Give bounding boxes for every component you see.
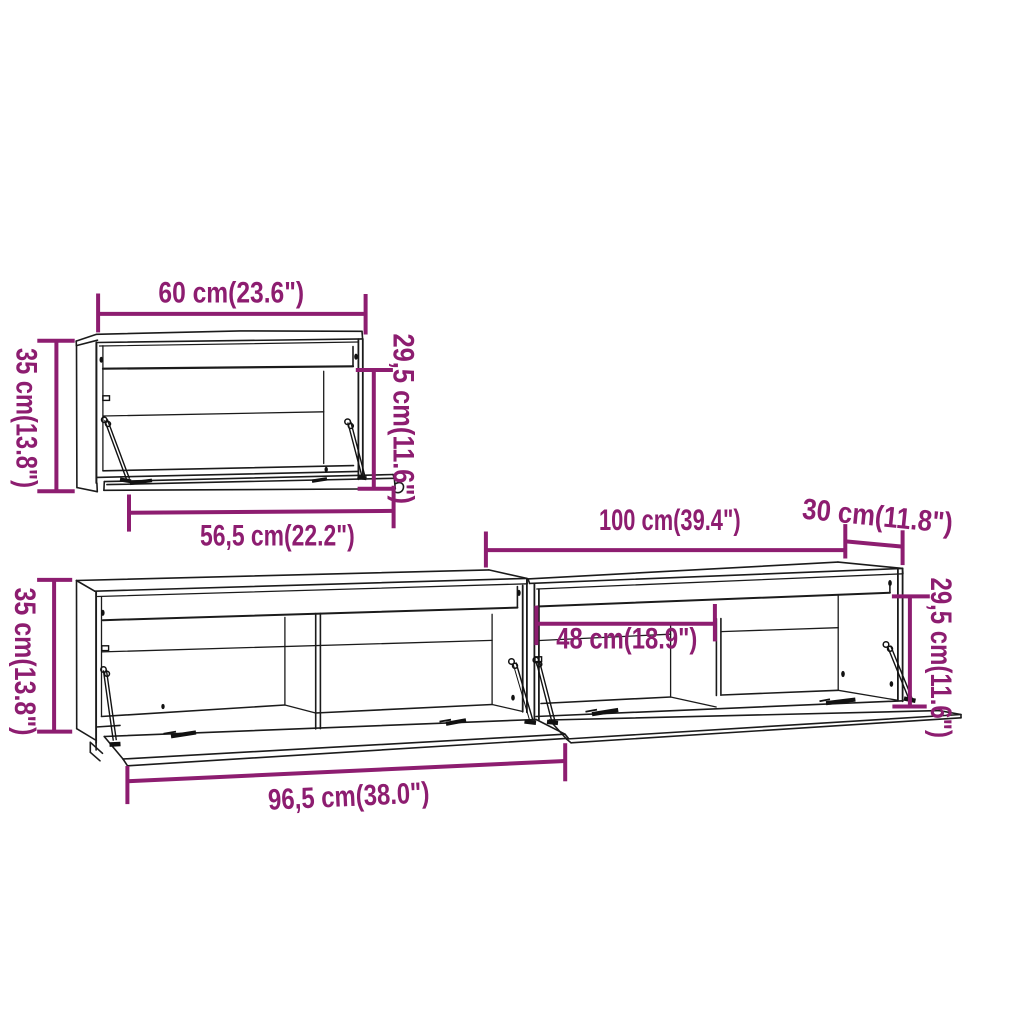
svg-text:29,5 cm(11.6"): 29,5 cm(11.6") [387, 334, 420, 505]
svg-text:100 cm(39.4"): 100 cm(39.4") [599, 504, 741, 537]
svg-text:35 cm(13.8"): 35 cm(13.8") [8, 588, 41, 736]
svg-text:35 cm(13.8"): 35 cm(13.8") [10, 348, 43, 488]
svg-text:48 cm(18.9"): 48 cm(18.9") [556, 623, 697, 656]
svg-text:56,5 cm(22.2"): 56,5 cm(22.2") [200, 519, 355, 552]
svg-text:29,5 cm(11.6"): 29,5 cm(11.6") [924, 578, 957, 739]
svg-text:60 cm(23.6"): 60 cm(23.6") [158, 276, 304, 309]
